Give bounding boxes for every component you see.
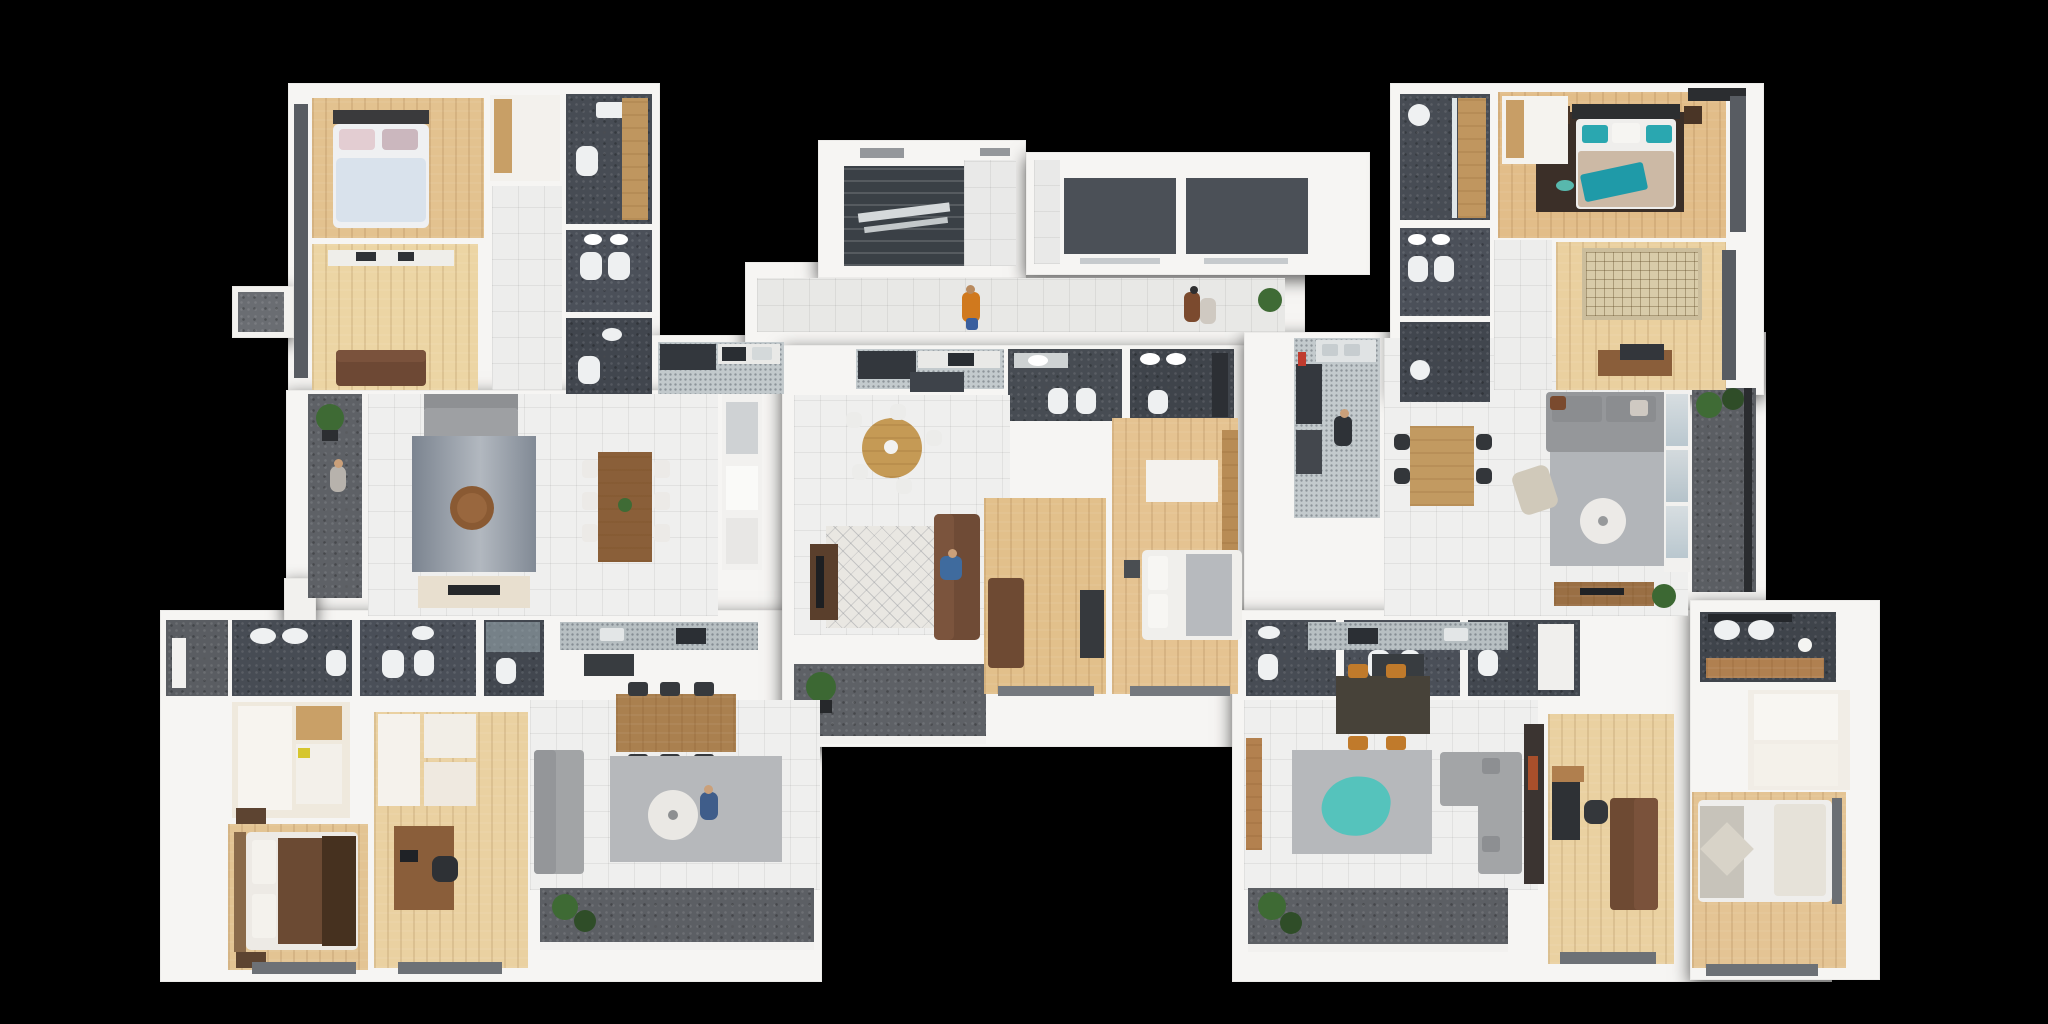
tr-bed-pillow-teal-1 (1582, 125, 1608, 143)
ll-balcony-person-head (334, 459, 343, 468)
elevator-sill-1 (1080, 258, 1160, 264)
tr-bath-top-shower-wood (1458, 98, 1486, 218)
stairwell-vent-1 (860, 148, 904, 158)
bl-wardrobe-yellow-box (298, 748, 310, 758)
rm-dining-chair-3 (1476, 434, 1492, 450)
tr-room2-window (1722, 250, 1736, 380)
ca-dining-chair-1 (846, 412, 862, 428)
bl-kitchen-cooktop (676, 628, 706, 644)
bl-nightstand-1 (236, 808, 266, 824)
br-kitchen-cooktop (1348, 628, 1378, 644)
hallway-pair-person-1 (1184, 292, 1200, 322)
bl-study-wardrobe-2 (424, 714, 476, 758)
bl-kitchen-counter (560, 622, 758, 650)
rm-kitchen-appliances (1296, 364, 1322, 424)
rm-glass-pane-2 (1666, 450, 1688, 502)
br-wing-wardrobe-1 (1754, 694, 1838, 740)
br-tv-wall (1524, 724, 1544, 884)
rm-glass-pane-3 (1666, 506, 1688, 558)
rm-sofa-pillow-brown (1550, 396, 1566, 410)
ca-bath-a-toilet-2 (1076, 388, 1096, 414)
br-wing-bath-sink-1 (1714, 620, 1740, 640)
bl-bed-pillow-1 (252, 840, 276, 884)
br-sofa-pillow-1 (1482, 758, 1500, 774)
elevator-shaft-2 (1186, 178, 1308, 254)
tr-hall-tile (1494, 240, 1552, 390)
ll-coffee-table-top (457, 493, 487, 523)
br-wing-bedroom-window (1706, 964, 1818, 976)
br-sideboard-wood (1246, 738, 1262, 850)
ca-bed-pillow-1 (1148, 556, 1168, 590)
ll-balcony-person-body (330, 466, 346, 492)
ll-dining-plant (618, 498, 632, 512)
rm-kitchen-sink-2 (1344, 344, 1360, 356)
bl-bed-headboard (234, 832, 246, 952)
tl-kitchen-cooktop (722, 347, 746, 361)
ll-tv (448, 585, 500, 595)
bl-dining-table (616, 694, 736, 752)
tr-bed-pillow-teal-2 (1646, 125, 1672, 143)
bl-bed-throw-dark (322, 836, 356, 946)
br-study-sofa-cushions (1634, 798, 1658, 910)
ca-dining-chair-3 (926, 430, 942, 446)
ca-dining-chair-5 (896, 478, 912, 494)
rm-sofa-pillow-knit (1630, 400, 1648, 416)
br-sofa-pillow-2 (1482, 836, 1500, 852)
rm-balcony-window-frame (1744, 388, 1752, 592)
ll-counter-lower (726, 518, 758, 564)
hallway-person-legs (966, 318, 978, 330)
br-study-desk (1552, 776, 1580, 840)
br-tv-screen (1528, 756, 1538, 790)
ca-bed-pillow-2 (1148, 594, 1168, 628)
tl-bed-headboard (333, 110, 429, 124)
tl-bed-pillow-pink (339, 129, 375, 150)
tl-hall-tile (492, 186, 562, 390)
br-bath-1-toilet (1258, 654, 1278, 680)
ll-appliance-gray (726, 402, 758, 454)
bl-person-body (700, 792, 718, 820)
tl-room2-sofa-back (336, 350, 426, 362)
rm-kitchen-island (1296, 430, 1322, 474)
bl-left-balcony-panel (172, 638, 186, 688)
rm-dining-chair-1 (1394, 434, 1410, 450)
br-study-desk-wood (1552, 766, 1584, 782)
tl-room2-desk (328, 250, 454, 266)
tl-room2-desk-item1 (356, 252, 376, 261)
ca-dining-chair-4 (852, 464, 868, 480)
juliet-balcony-floor (238, 292, 284, 332)
tl-bedroom-window-strip (294, 104, 308, 272)
bl-bath-3-shower-glass (486, 622, 540, 652)
br-balcony-plant-2 (1280, 912, 1302, 934)
hallway-person-head (966, 285, 975, 294)
ca-dining-plate (884, 440, 898, 454)
bl-bed-duvet-brown (278, 838, 322, 944)
elevator-shaft-1 (1064, 178, 1176, 254)
stairwell-landing-tile (964, 160, 1016, 266)
ll-balcony-pot (322, 430, 338, 441)
ca-tv (816, 556, 824, 608)
tr-bed-pillow-white (1612, 123, 1640, 143)
tl-bath-top-toilet (576, 146, 598, 176)
br-wing-bath-pendant (1798, 638, 1812, 652)
ca-balcony-railing (794, 736, 986, 744)
tl-bath-top-shower-wood (622, 98, 648, 220)
bl-dining-chair-2 (660, 682, 680, 696)
br-wing-bath-wood-strip (1706, 658, 1824, 678)
bl-wardrobe-white (238, 706, 292, 810)
ll-dining-chair-1 (582, 460, 598, 478)
bl-wardrobe-wood-shelf (296, 706, 342, 740)
bl-bath-1-toilet (326, 650, 346, 676)
bl-bath-1-sink-2 (282, 628, 308, 644)
bl-study-laptop (400, 850, 418, 862)
bl-study-wardrobe-3 (424, 762, 476, 806)
bl-study-wardrobe-1 (378, 714, 420, 806)
ca-kitchen-counter-dark (858, 351, 916, 379)
br-bath-1-sink (1258, 626, 1280, 639)
tr-bath-top-glass (1452, 98, 1457, 218)
br-study-window (1560, 952, 1656, 964)
br-dining-chair-orange-1 (1348, 664, 1368, 678)
tr-bath-mid-toilet-1 (1408, 256, 1428, 282)
ca-den-window (998, 686, 1094, 696)
tl-room2-window-strip (294, 252, 308, 378)
rm-balcony-plant-2 (1722, 388, 1744, 410)
ca-bath-b-toilet (1148, 390, 1168, 414)
ca-bedroom-window (1130, 686, 1230, 696)
tr-bath-bottom-sink (1410, 360, 1430, 380)
br-bath-3-toilet (1478, 650, 1498, 676)
br-bath-3-panel (1538, 624, 1574, 690)
bl-kitchen-sink (600, 628, 624, 641)
ca-tv-cabinet (810, 544, 838, 620)
tl-bed-duvet (336, 158, 426, 222)
ca-den-media-unit (1080, 590, 1104, 658)
bl-study-chair (432, 856, 458, 882)
hallway-plant (1258, 288, 1282, 312)
stairwell-vent-2 (980, 148, 1010, 156)
tr-daybed-grid (1586, 252, 1698, 316)
rm-glass-pane-1 (1666, 394, 1688, 446)
bl-sofa-l-cushions (534, 750, 556, 874)
ca-bed-nightstand (1124, 560, 1140, 578)
bl-balcony-plant-2 (574, 910, 596, 932)
tl-bed-pillow-mauve (382, 129, 418, 150)
ca-closet-island (1146, 460, 1218, 502)
hallway-pair-person-2 (1200, 298, 1216, 324)
tr-wardrobe-wood (1506, 100, 1524, 158)
ll-dining-chair-6 (654, 524, 670, 542)
br-kitchen-sink (1444, 628, 1468, 641)
tr-nightstand-2 (1684, 106, 1702, 124)
bl-bath-1-sink-1 (250, 628, 276, 644)
ca-bath-b-sink-1 (1140, 353, 1160, 365)
ca-sofa-person-body (940, 556, 962, 580)
br-wing-bed-pillow-stack (1774, 804, 1826, 896)
tl-kitchen-sink (752, 347, 772, 360)
bl-coffee-table-center (668, 810, 678, 820)
bl-bath-2-sink (412, 626, 434, 640)
rm-kitchen-person-head (1340, 409, 1349, 418)
bl-bed-pillow-2 (252, 894, 276, 938)
tl-bath-bottom-toilet (578, 356, 600, 384)
rm-tv (1580, 588, 1624, 595)
br-study-chair (1584, 800, 1608, 824)
ca-bath-a-sink (1028, 355, 1048, 366)
ca-den-sofa (988, 578, 1024, 668)
tr-rug-flower-1 (1556, 180, 1574, 191)
tl-kitchen-counter-dark (660, 344, 716, 370)
rm-console-plant (1652, 584, 1676, 608)
ca-rug-patterned (826, 526, 938, 628)
bl-bath-2-bidet (414, 650, 434, 676)
ca-sofa-person-head (948, 549, 957, 558)
rm-coffee-table-center (1598, 516, 1608, 526)
tl-bath-mid-toilet1 (580, 252, 602, 280)
ll-dining-chair-3 (582, 524, 598, 542)
br-wing-wardrobe-2 (1754, 744, 1838, 786)
ll-dining-chair-4 (654, 460, 670, 478)
elevator-sill-2 (1204, 258, 1288, 264)
br-wing-bed-headboard (1832, 798, 1842, 904)
ca-closet-wardrobe (1222, 430, 1238, 570)
ca-bath-b-sink-2 (1166, 353, 1186, 365)
tl-bath-bottom-sink (602, 328, 622, 341)
floor-plan-render (0, 0, 2048, 1024)
bl-bedroom-window (252, 962, 356, 974)
rm-dining-chair-2 (1394, 468, 1410, 484)
rm-kitchen-sink-1 (1322, 344, 1338, 356)
ll-dining-chair-2 (582, 492, 598, 510)
ca-bath-b-cabinet (1212, 353, 1228, 417)
bl-dining-chair-1 (628, 682, 648, 696)
ll-dining-chair-5 (654, 492, 670, 510)
ca-kitchen-cooktop (948, 353, 974, 366)
br-dining-chair-orange-2 (1386, 664, 1406, 678)
br-dining-chair-orange-4 (1386, 736, 1406, 750)
tr-bath-top-sink (1408, 104, 1430, 126)
ca-balcony-plant (806, 672, 836, 702)
br-balcony-railing (1248, 944, 1508, 952)
br-dining-chair-orange-3 (1348, 736, 1368, 750)
ll-balcony-plant (316, 404, 344, 432)
bl-study-window (398, 962, 502, 974)
ca-bed-blanket (1186, 554, 1232, 636)
tl-wardrobe-wood-shelf (494, 99, 512, 173)
bl-dining-chair-3 (694, 682, 714, 696)
br-wing-bath-sink-2 (1748, 620, 1774, 640)
tl-room2-desk-item2 (398, 252, 414, 261)
br-dining-table-dark (1336, 676, 1430, 734)
bl-kitchen-island (584, 654, 634, 676)
tr-bath-mid-toilet-2 (1434, 256, 1454, 282)
bl-balcony-railing (540, 942, 814, 950)
tr-right-window-strip (1730, 96, 1746, 232)
bl-bath-3-toilet (496, 658, 516, 684)
rm-dining-chair-4 (1476, 468, 1492, 484)
tl-bath-mid-sink2 (610, 234, 628, 245)
tl-bath-mid-toilet2 (608, 252, 630, 280)
ca-kitchen-island (910, 372, 964, 392)
tl-bath-mid-sink1 (584, 234, 602, 245)
tr-bath-mid-sink-2 (1432, 234, 1450, 245)
ca-bath-a-toilet-1 (1048, 388, 1068, 414)
rm-kitchen-red-jars (1298, 352, 1306, 366)
ll-fridge (726, 466, 758, 510)
rm-kitchen-person-body (1334, 416, 1352, 446)
rm-balcony-plant-1 (1696, 392, 1722, 418)
ca-dining-chair-2 (890, 404, 906, 420)
br-kitchen-counter (1308, 622, 1508, 650)
tr-room2-monitor (1620, 344, 1664, 360)
elevator-lobby-tile (1034, 160, 1060, 264)
tr-bed-headboard (1572, 104, 1680, 119)
bl-bath-2-toilet (382, 650, 404, 678)
rm-dining-table (1410, 426, 1474, 506)
bl-person-head (704, 785, 713, 794)
hallway-pair-head (1190, 286, 1198, 294)
tr-bath-mid-sink-1 (1408, 234, 1426, 245)
